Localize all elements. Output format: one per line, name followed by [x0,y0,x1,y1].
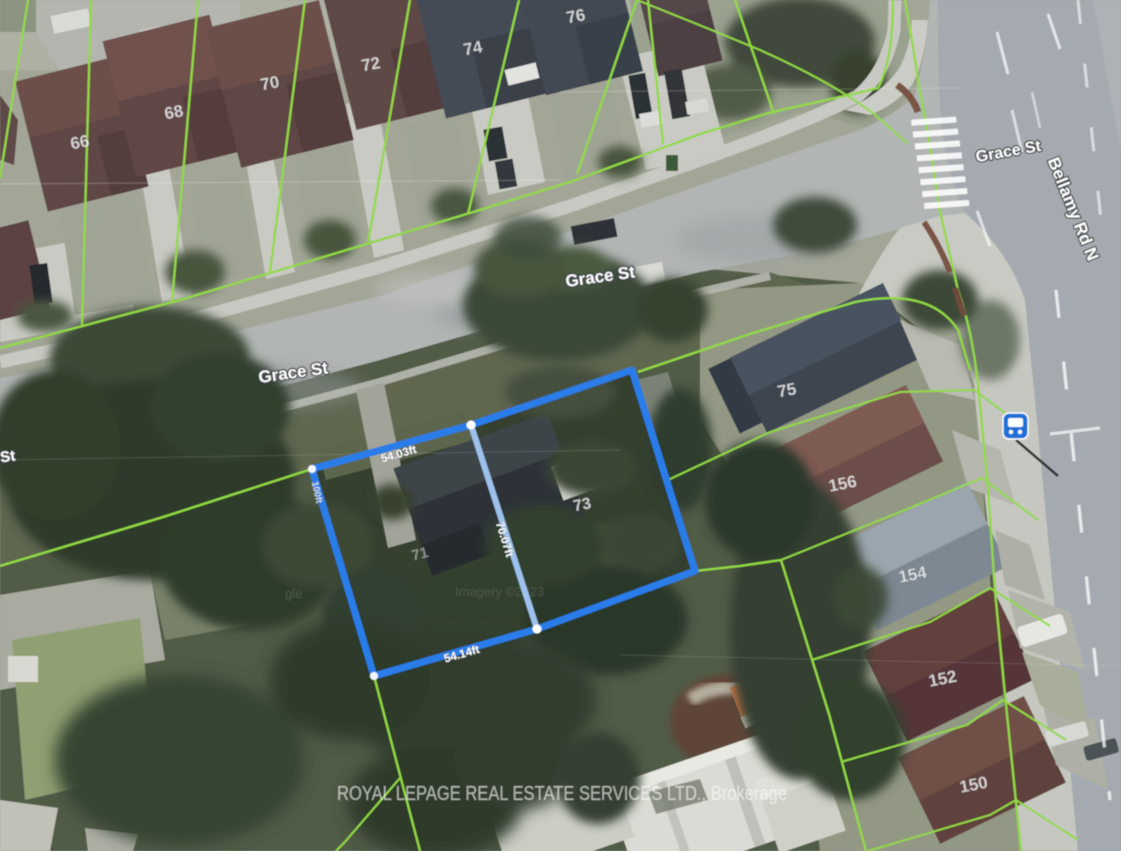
svg-text:75: 75 [776,379,798,401]
svg-text:70: 70 [259,72,281,94]
svg-text:ROYAL LEPAGE REAL ESTATE SERVI: ROYAL LEPAGE REAL ESTATE SERVICES LTD., … [337,783,787,805]
svg-text:68: 68 [163,101,185,123]
svg-text:Imagery ©2023: Imagery ©2023 [455,584,544,599]
svg-text:72: 72 [360,53,382,75]
svg-text:gle: gle [285,586,302,601]
svg-text:76: 76 [565,5,587,27]
svg-text:66: 66 [69,131,91,153]
svg-text:73: 73 [572,495,593,515]
svg-text:St: St [0,447,16,466]
